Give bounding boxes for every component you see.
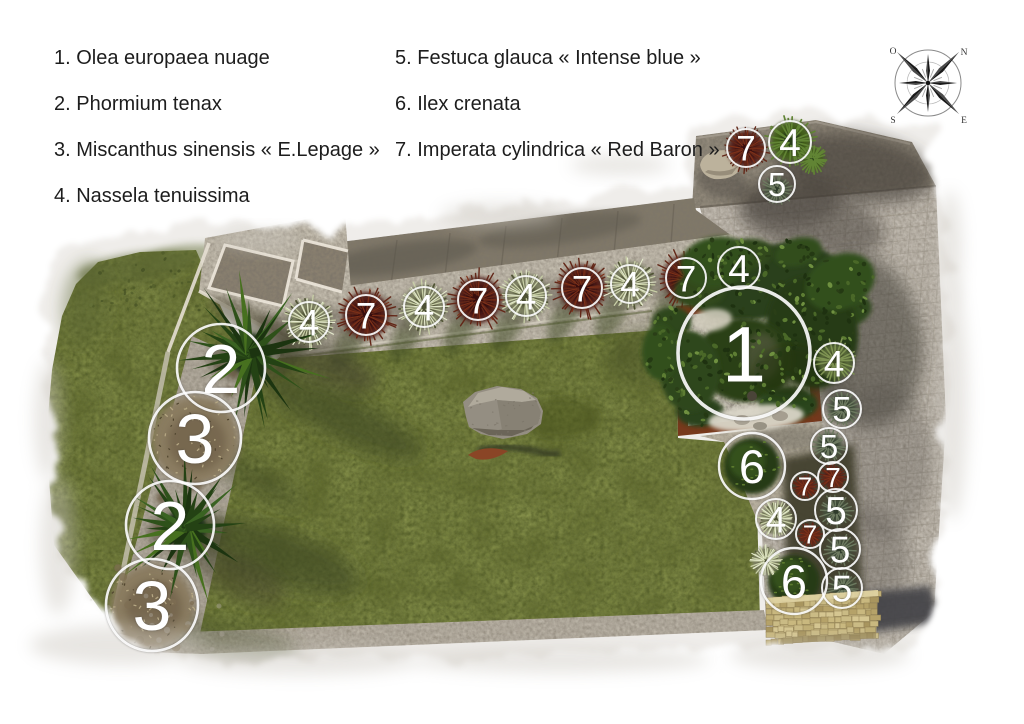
svg-text:E: E: [961, 116, 967, 126]
svg-text:3: 3: [133, 567, 172, 645]
svg-text:7: 7: [468, 280, 489, 321]
svg-text:5: 5: [832, 568, 853, 609]
svg-text:4: 4: [299, 302, 320, 343]
svg-text:5: 5: [825, 490, 847, 533]
svg-text:N: N: [961, 48, 968, 58]
svg-text:O: O: [890, 47, 897, 57]
svg-text:6: 6: [781, 555, 807, 608]
svg-text:4: 4: [766, 499, 787, 540]
svg-text:4: 4: [414, 287, 435, 328]
svg-text:4: 4: [824, 343, 845, 384]
svg-text:4: 4: [779, 122, 801, 165]
svg-text:6: 6: [739, 440, 765, 493]
svg-text:7: 7: [572, 268, 593, 309]
svg-text:4: 4: [728, 248, 750, 291]
svg-text:4: 4: [516, 276, 537, 317]
svg-text:7: 7: [676, 258, 697, 299]
svg-text:5: 5: [830, 529, 851, 570]
svg-text:1: 1: [722, 309, 766, 398]
svg-text:S: S: [890, 116, 895, 126]
svg-text:3: 3: [176, 400, 215, 478]
svg-text:7: 7: [736, 130, 755, 169]
svg-text:5: 5: [768, 166, 786, 203]
svg-text:2: 2: [151, 487, 190, 565]
svg-text:2: 2: [202, 330, 241, 408]
svg-text:4: 4: [620, 266, 639, 305]
svg-text:5: 5: [832, 391, 851, 430]
svg-text:5: 5: [820, 428, 838, 465]
svg-text:7: 7: [356, 295, 377, 336]
svg-text:7: 7: [803, 519, 817, 549]
svg-text:7: 7: [798, 471, 812, 501]
